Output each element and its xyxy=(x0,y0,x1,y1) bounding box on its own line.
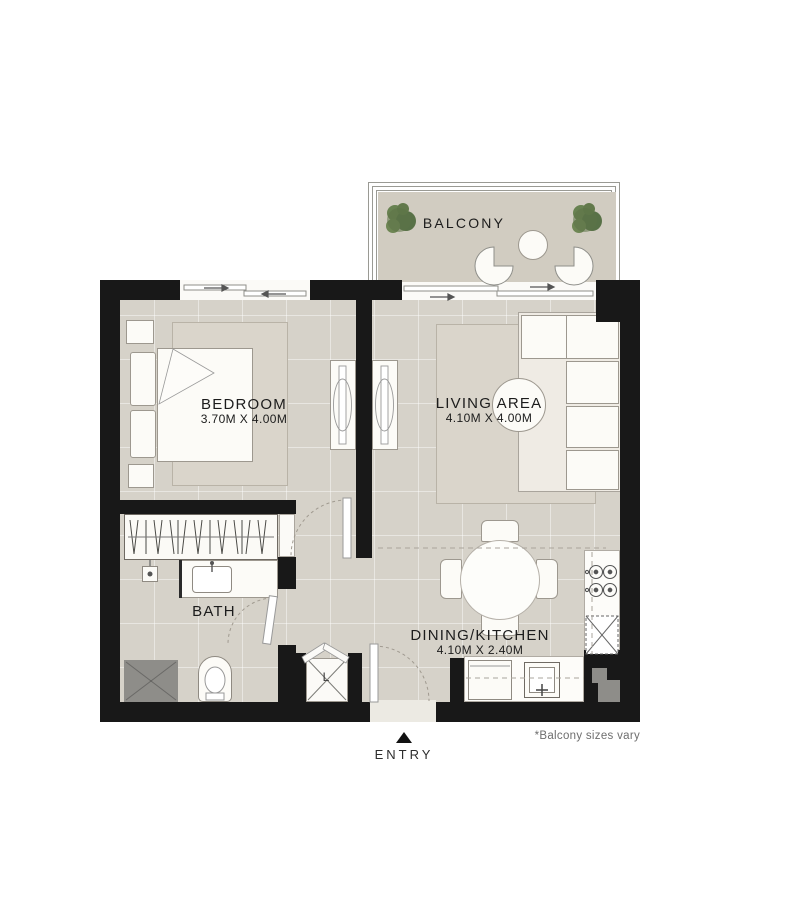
bedroom-dimensions: 3.70M X 4.00M xyxy=(174,413,314,426)
bath-label: BATH xyxy=(174,604,254,621)
laundry-label: L xyxy=(314,671,338,684)
linework-layer xyxy=(0,0,807,900)
living-area-dimensions: 4.10M X 4.00M xyxy=(419,412,559,425)
balcony-chair xyxy=(475,247,593,285)
stove-burners xyxy=(585,566,616,597)
balcony-label: BALCONY xyxy=(394,216,534,231)
plant-icon xyxy=(572,203,602,233)
toilet-bowl xyxy=(205,667,225,700)
wardrobe-door-detail xyxy=(334,366,394,444)
cabinet-dashed-lines xyxy=(378,548,606,678)
appliance-xbox xyxy=(586,616,618,654)
shaft-x xyxy=(126,662,176,700)
dining-kitchen-dimensions: 4.10M X 2.40M xyxy=(405,644,555,657)
floor-plan: BALCONY BEDROOM 3.70M X 4.00M LIVING ARE… xyxy=(0,0,807,900)
faucet-icon xyxy=(210,561,214,572)
balcony-sizes-footnote: *Balcony sizes vary xyxy=(440,730,640,743)
shower-icon xyxy=(148,560,153,577)
entry-label: ENTRY xyxy=(354,748,454,762)
entry-arrow-icon xyxy=(396,732,412,743)
sink-faucet-cross xyxy=(536,684,548,696)
laundry-doors xyxy=(302,643,349,663)
